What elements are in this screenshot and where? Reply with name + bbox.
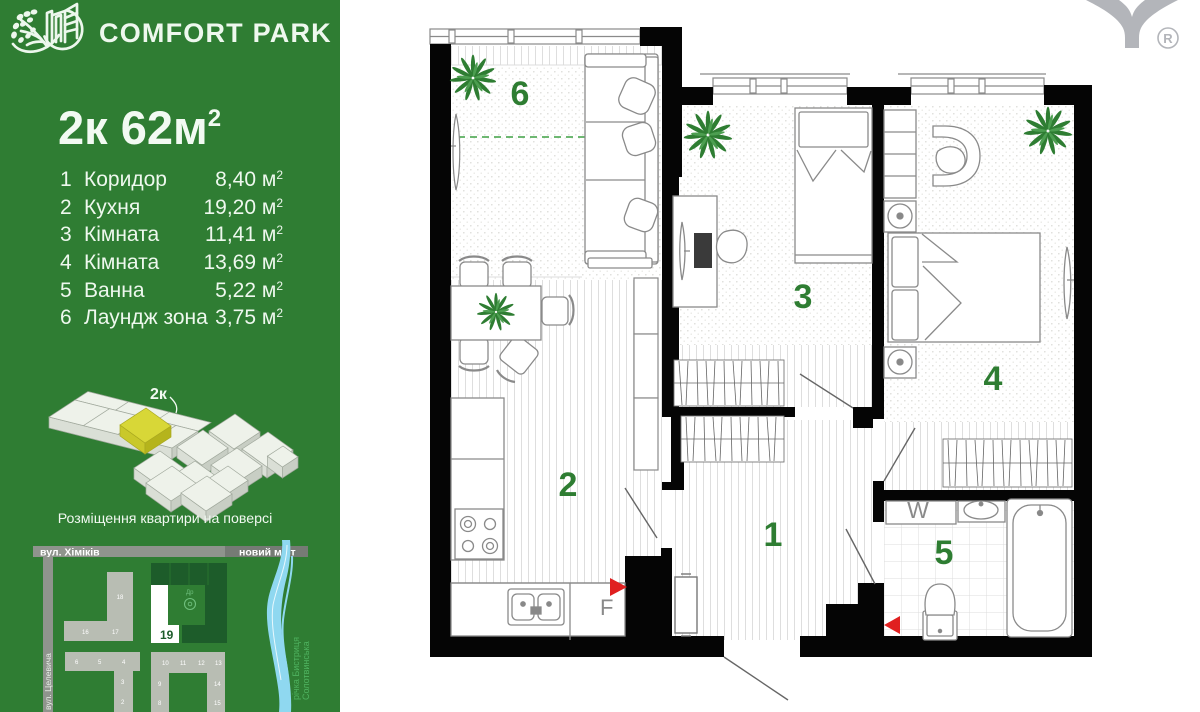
- svg-text:R: R: [1163, 31, 1173, 46]
- svg-text:11: 11: [180, 661, 187, 667]
- svg-text:3,75 м2: 3,75 м2: [215, 306, 283, 329]
- svg-text:6: 6: [511, 75, 530, 113]
- svg-text:2: 2: [559, 466, 578, 504]
- svg-text:2к: 2к: [150, 386, 168, 403]
- svg-text:19: 19: [160, 628, 174, 642]
- svg-text:19,20 м2: 19,20 м2: [203, 196, 283, 219]
- svg-text:4: 4: [984, 360, 1003, 398]
- svg-text:Коридор: Коридор: [84, 168, 167, 191]
- svg-text:17: 17: [112, 630, 119, 636]
- svg-text:6: 6: [60, 306, 72, 329]
- svg-text:13: 13: [215, 661, 222, 667]
- svg-text:5: 5: [60, 279, 72, 302]
- svg-text:12: 12: [198, 661, 205, 667]
- svg-text:Солотвинська: Солотвинська: [301, 641, 311, 700]
- svg-text:13,69 м2: 13,69 м2: [203, 251, 283, 274]
- svg-text:вул. Целевича: вул. Целевича: [43, 653, 53, 710]
- svg-text:Кімната: Кімната: [84, 223, 160, 246]
- svg-text:2к 62м2: 2к 62м2: [58, 101, 221, 154]
- svg-text:18: 18: [117, 595, 124, 601]
- svg-text:1: 1: [60, 168, 72, 191]
- svg-text:Розміщення квартири на поверсі: Розміщення квартири на поверсі: [58, 511, 273, 527]
- svg-text:вул. Хіміків: вул. Хіміків: [40, 547, 100, 559]
- svg-text:COMFORT PARK: COMFORT PARK: [99, 18, 332, 48]
- svg-text:5,22 м2: 5,22 м2: [215, 279, 283, 302]
- svg-text:3: 3: [794, 278, 813, 316]
- svg-text:8,40 м2: 8,40 м2: [215, 168, 283, 191]
- svg-text:4: 4: [60, 251, 72, 274]
- svg-text:Ванна: Ванна: [84, 279, 145, 302]
- svg-text:Кухня: Кухня: [84, 196, 140, 219]
- svg-text:14: 14: [214, 682, 221, 688]
- svg-text:5: 5: [935, 534, 954, 572]
- svg-text:10: 10: [162, 661, 169, 667]
- svg-text:річка Бистриця: річка Бистриця: [291, 637, 301, 700]
- svg-text:2: 2: [60, 196, 72, 219]
- svg-text:Кімната: Кімната: [84, 251, 160, 274]
- svg-text:16: 16: [82, 630, 89, 636]
- svg-text:W: W: [907, 497, 929, 523]
- svg-text:F: F: [600, 595, 613, 620]
- svg-text:Др: Др: [186, 590, 194, 596]
- svg-text:Лаундж зона: Лаундж зона: [84, 306, 208, 329]
- svg-text:15: 15: [214, 701, 221, 707]
- svg-text:1: 1: [764, 516, 783, 554]
- svg-text:11,41 м2: 11,41 м2: [205, 223, 283, 246]
- svg-text:3: 3: [60, 223, 72, 246]
